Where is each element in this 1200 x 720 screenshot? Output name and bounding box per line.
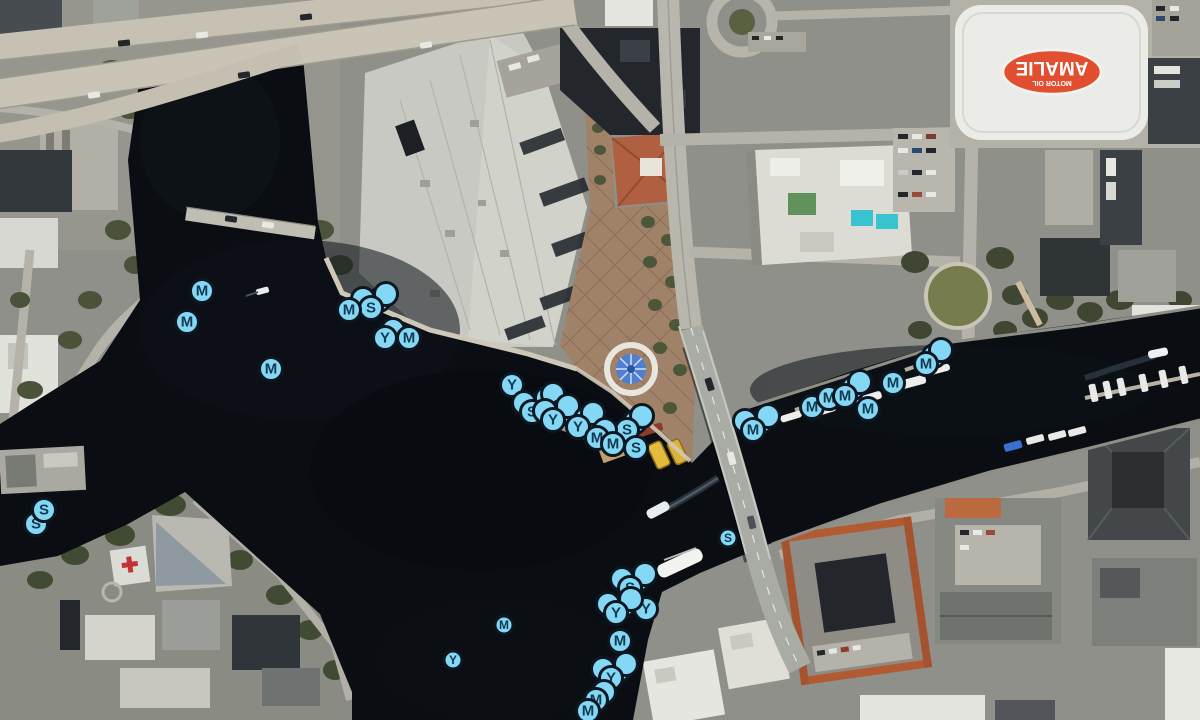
map-marker-s[interactable]: S <box>718 528 739 549</box>
marker-letter: M <box>403 329 416 346</box>
map-marker-y[interactable]: Y <box>372 325 398 351</box>
map-marker-m[interactable]: M <box>336 297 362 323</box>
map-marker-m[interactable]: M <box>189 278 215 304</box>
marker-letter: M <box>265 360 278 377</box>
map-marker-m[interactable]: M <box>880 370 906 396</box>
marker-letter: S <box>631 439 641 456</box>
marker-letter: M <box>499 618 509 632</box>
satellite-map: MOTOR OIL AMALIE <box>0 0 1200 720</box>
marker-letter: M <box>862 400 875 417</box>
marker-letter: M <box>181 313 194 330</box>
map-marker-m[interactable]: M <box>607 628 633 654</box>
marker-letter: M <box>920 355 933 372</box>
map-marker-s[interactable]: S <box>31 497 57 523</box>
map-marker-s[interactable]: S <box>623 435 649 461</box>
marker-letter: Y <box>548 411 558 428</box>
map-marker-m[interactable]: M <box>258 356 284 382</box>
marker-letter: Y <box>611 604 621 621</box>
map-marker-m[interactable]: M <box>494 615 515 636</box>
marker-letter: M <box>196 282 209 299</box>
map-marker-y[interactable]: Y <box>443 650 464 671</box>
marker-letter: M <box>887 374 900 391</box>
marker-letter: M <box>607 435 620 452</box>
marker-letter: M <box>614 632 627 649</box>
map-marker-m[interactable]: M <box>913 351 939 377</box>
marker-letter: Y <box>507 376 517 393</box>
marker-letter: Y <box>449 653 457 667</box>
marker-letter: M <box>582 702 595 719</box>
map-marker-m[interactable]: M <box>855 396 881 422</box>
map-marker-m[interactable]: M <box>575 698 601 720</box>
marker-letter: Y <box>380 329 390 346</box>
marker-letter: M <box>747 421 760 438</box>
marker-letter: S <box>39 501 49 518</box>
map-marker-y[interactable]: Y <box>540 407 566 433</box>
marker-layer: MMMSSSMYMYSYYSMMSMMMMMMMSSYYMYMMMY <box>0 0 1200 720</box>
marker-letter: S <box>366 299 376 316</box>
map-marker-y[interactable]: Y <box>603 600 629 626</box>
map-marker-m[interactable]: M <box>740 417 766 443</box>
marker-letter: Y <box>573 418 583 435</box>
marker-letter: S <box>724 531 732 545</box>
marker-letter: M <box>839 387 852 404</box>
map-marker-m[interactable]: M <box>832 383 858 409</box>
marker-letter: M <box>343 301 356 318</box>
map-marker-m[interactable]: M <box>396 325 422 351</box>
map-marker-m[interactable]: M <box>174 309 200 335</box>
map-marker-m[interactable]: M <box>600 431 626 457</box>
